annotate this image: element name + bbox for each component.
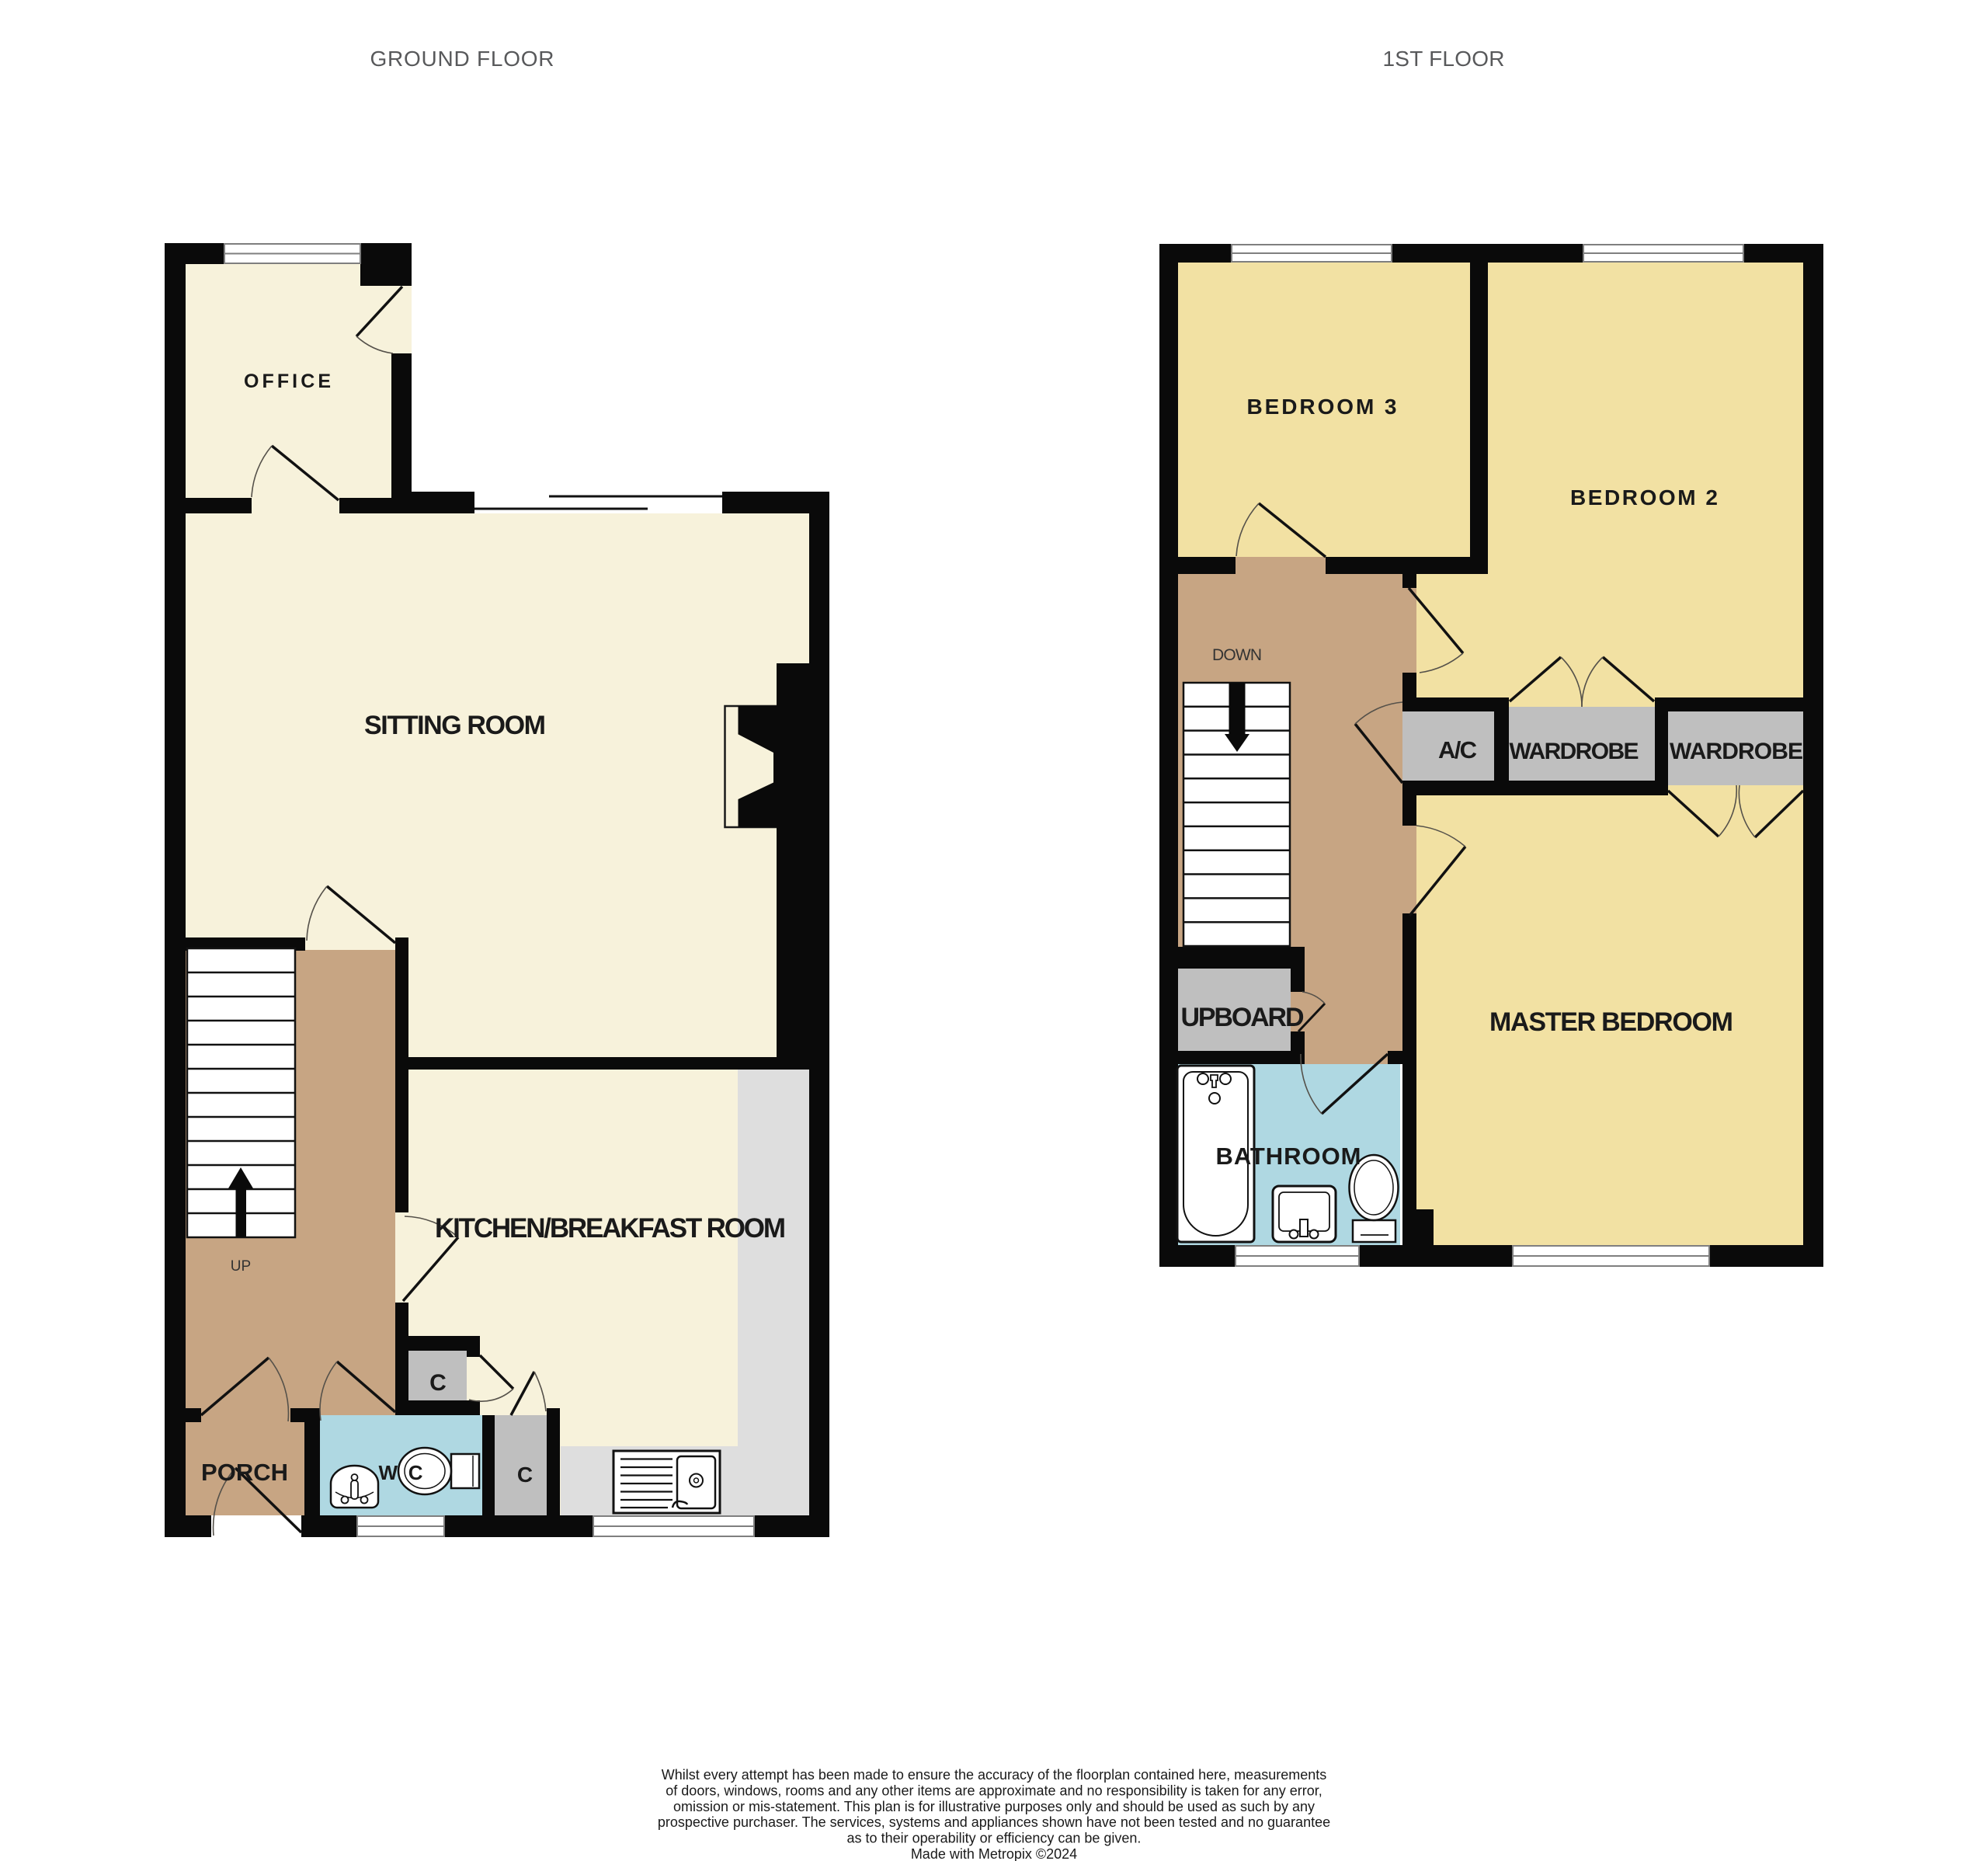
- svg-text:WARDROBE: WARDROBE: [1670, 739, 1803, 764]
- svg-text:UPBOARD: UPBOARD: [1181, 1003, 1305, 1032]
- svg-text:UP: UP: [231, 1258, 251, 1275]
- svg-text:WARDROBE: WARDROBE: [1510, 739, 1639, 764]
- svg-text:MASTER BEDROOM: MASTER BEDROOM: [1489, 1007, 1733, 1037]
- svg-text:KITCHEN/BREAKFAST ROOM: KITCHEN/BREAKFAST ROOM: [435, 1213, 786, 1244]
- svg-text:prospective purchaser. The ser: prospective purchaser. The services, sys…: [658, 1814, 1330, 1830]
- svg-text:omission or mis-statement. Thi: omission or mis-statement. This plan is …: [673, 1799, 1315, 1814]
- svg-text:1ST FLOOR: 1ST FLOOR: [1383, 47, 1505, 71]
- svg-text:BEDROOM 2: BEDROOM 2: [1570, 485, 1718, 510]
- svg-text:Whilst every attempt has been: Whilst every attempt has been made to en…: [662, 1767, 1326, 1783]
- svg-text:C: C: [517, 1463, 533, 1487]
- svg-text:Made with Metropix ©2024: Made with Metropix ©2024: [911, 1846, 1077, 1861]
- svg-text:GROUND FLOOR: GROUND FLOOR: [370, 47, 554, 71]
- svg-text:C: C: [429, 1370, 447, 1396]
- svg-text:as to their operability or eff: as to their operability or efficiency ca…: [847, 1831, 1142, 1846]
- svg-text:of doors, windows, rooms and a: of doors, windows, rooms and any other i…: [666, 1783, 1322, 1798]
- svg-text:OFFICE: OFFICE: [244, 370, 331, 392]
- svg-text:PORCH: PORCH: [201, 1459, 288, 1486]
- svg-text:SITTING ROOM: SITTING ROOM: [364, 711, 546, 740]
- svg-text:BATHROOM: BATHROOM: [1216, 1143, 1361, 1170]
- svg-text:A/C: A/C: [1438, 736, 1477, 764]
- svg-text:DOWN: DOWN: [1212, 646, 1262, 664]
